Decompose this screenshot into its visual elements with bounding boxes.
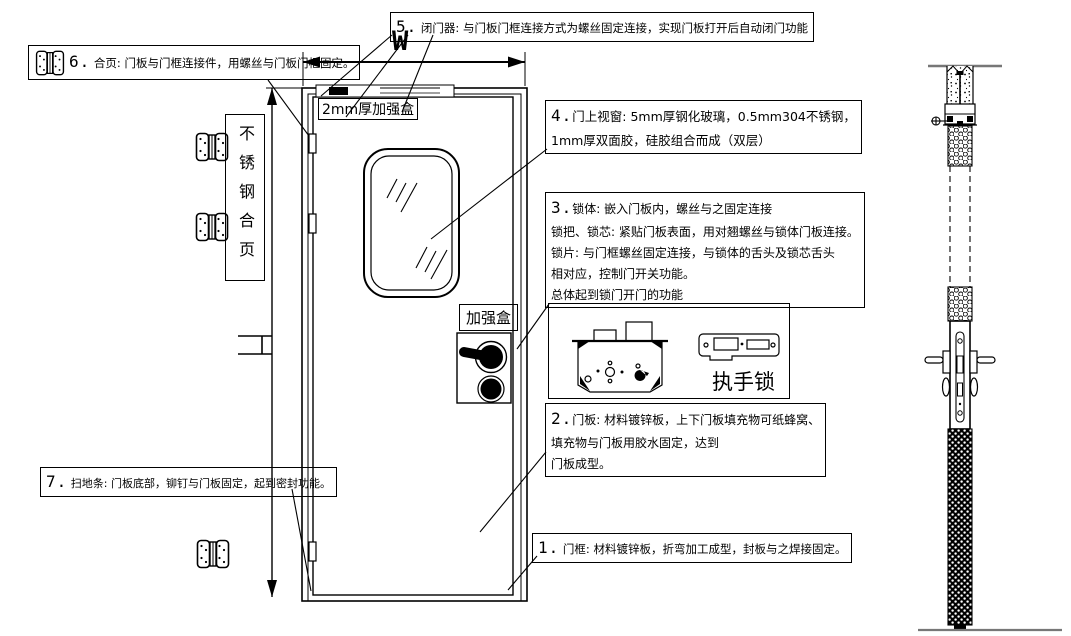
- anchor-symbol: [238, 336, 272, 354]
- arrow-down-icon: [267, 580, 277, 597]
- callout-line: 4.门上视窗: 5mm厚钢化玻璃，0.5mm304不锈钢，: [551, 102, 856, 130]
- lock-cylinder-icon: [478, 376, 504, 402]
- callout-text: 闭门器: 与门板门框连接方式为螺丝固定连接，实现门板打开后自动闭门功能: [421, 21, 808, 35]
- callout-line: 门板成型。: [551, 454, 820, 475]
- hinge-icon: [198, 541, 229, 568]
- hinge-icon: [197, 134, 228, 161]
- honeycomb-fill-mid: [948, 287, 972, 321]
- hollow-leaf-dashed: [950, 166, 970, 287]
- callout-line: 1mm厚双面胶，硅胶组合而成（双层）: [551, 130, 856, 152]
- door-lock-assembly: [457, 333, 511, 403]
- top-reinforce-box-label: 2mm厚加强盒: [318, 98, 418, 120]
- lock-reinforce-box-label: 加强盒: [459, 304, 518, 331]
- callout-line: 锁把、锁芯: 紧贴门板表面，用对翘螺丝与锁体门板连接。: [551, 222, 859, 243]
- callout-line: 相对应，控制门开关功能。: [551, 264, 859, 285]
- callout-3-lock-body: 3.锁体: 嵌入门板内，螺丝与之固定连接 锁把、锁芯: 紧贴门板表面，用对翘螺丝…: [545, 192, 865, 308]
- door-closer: [316, 85, 454, 97]
- callout-number: 7.: [46, 472, 67, 491]
- callout-line: 填充物与门板用胶水固定，达到: [551, 433, 820, 454]
- door-technical-drawing: 5. 闭门器: 与门板门框连接方式为螺丝固定连接，实现门板打开后自动闭门功能 6…: [0, 0, 1071, 636]
- callout-number: 6.: [69, 52, 90, 71]
- section-view: [918, 66, 1062, 630]
- callout-number: 1.: [538, 538, 559, 557]
- callout-line: 锁片: 与门框螺丝固定连接，与锁体的舌头及锁芯舌头: [551, 243, 859, 264]
- callout-line: 2.门板: 材料镀锌板，上下门板填充物可纸蜂窝、: [551, 405, 820, 433]
- width-dimension-label: W: [392, 26, 408, 57]
- dense-fill-bottom: [948, 429, 972, 625]
- callout-7-sweep-strip: 7. 扫地条: 门板底部，铆钉与门板固定，起到密封功能。: [40, 467, 337, 497]
- lock-detail-panel: 执手锁: [548, 303, 790, 399]
- glass-hatch-marks: [387, 179, 447, 279]
- callout-2-door-panel: 2.门板: 材料镀锌板，上下门板填充物可纸蜂窝、 填充物与门板用胶水固定，达到 …: [545, 403, 826, 477]
- frame-head-section: [943, 104, 977, 126]
- callout-text: 扫地条: 门板底部，铆钉与门板固定，起到密封功能。: [71, 477, 331, 490]
- callout-1-door-frame: 1. 门框: 材料镀锌板，折弯加工成型，封板与之焊接固定。: [532, 533, 852, 563]
- arrow-right-icon: [508, 57, 525, 68]
- callout-text: 合页: 门板与门框连接件，用螺丝与门板门框固定。: [94, 56, 355, 70]
- hinge-icon: [197, 214, 228, 241]
- callout-line: 3.锁体: 嵌入门板内，螺丝与之固定连接: [551, 194, 859, 222]
- honeycomb-fill-top: [948, 126, 972, 166]
- lock-section: [950, 321, 970, 429]
- door-window: [364, 149, 459, 297]
- callout-6-hinge: 6. 合页: 门板与门框连接件，用螺丝与门板门框固定。: [28, 45, 360, 80]
- callout-text: 门框: 材料镀锌板，折弯加工成型，封板与之焊接固定。: [563, 542, 847, 556]
- stainless-hinge-label: 不锈钢合页: [225, 114, 265, 281]
- callout-4-window: 4.门上视窗: 5mm厚钢化玻璃，0.5mm304不锈钢， 1mm厚双面胶，硅胶…: [545, 100, 862, 154]
- handle-lock-label: 执手锁: [712, 366, 775, 396]
- callout-5-door-closer: 5. 闭门器: 与门板门框连接方式为螺丝固定连接，实现门板打开后自动闭门功能: [390, 12, 814, 42]
